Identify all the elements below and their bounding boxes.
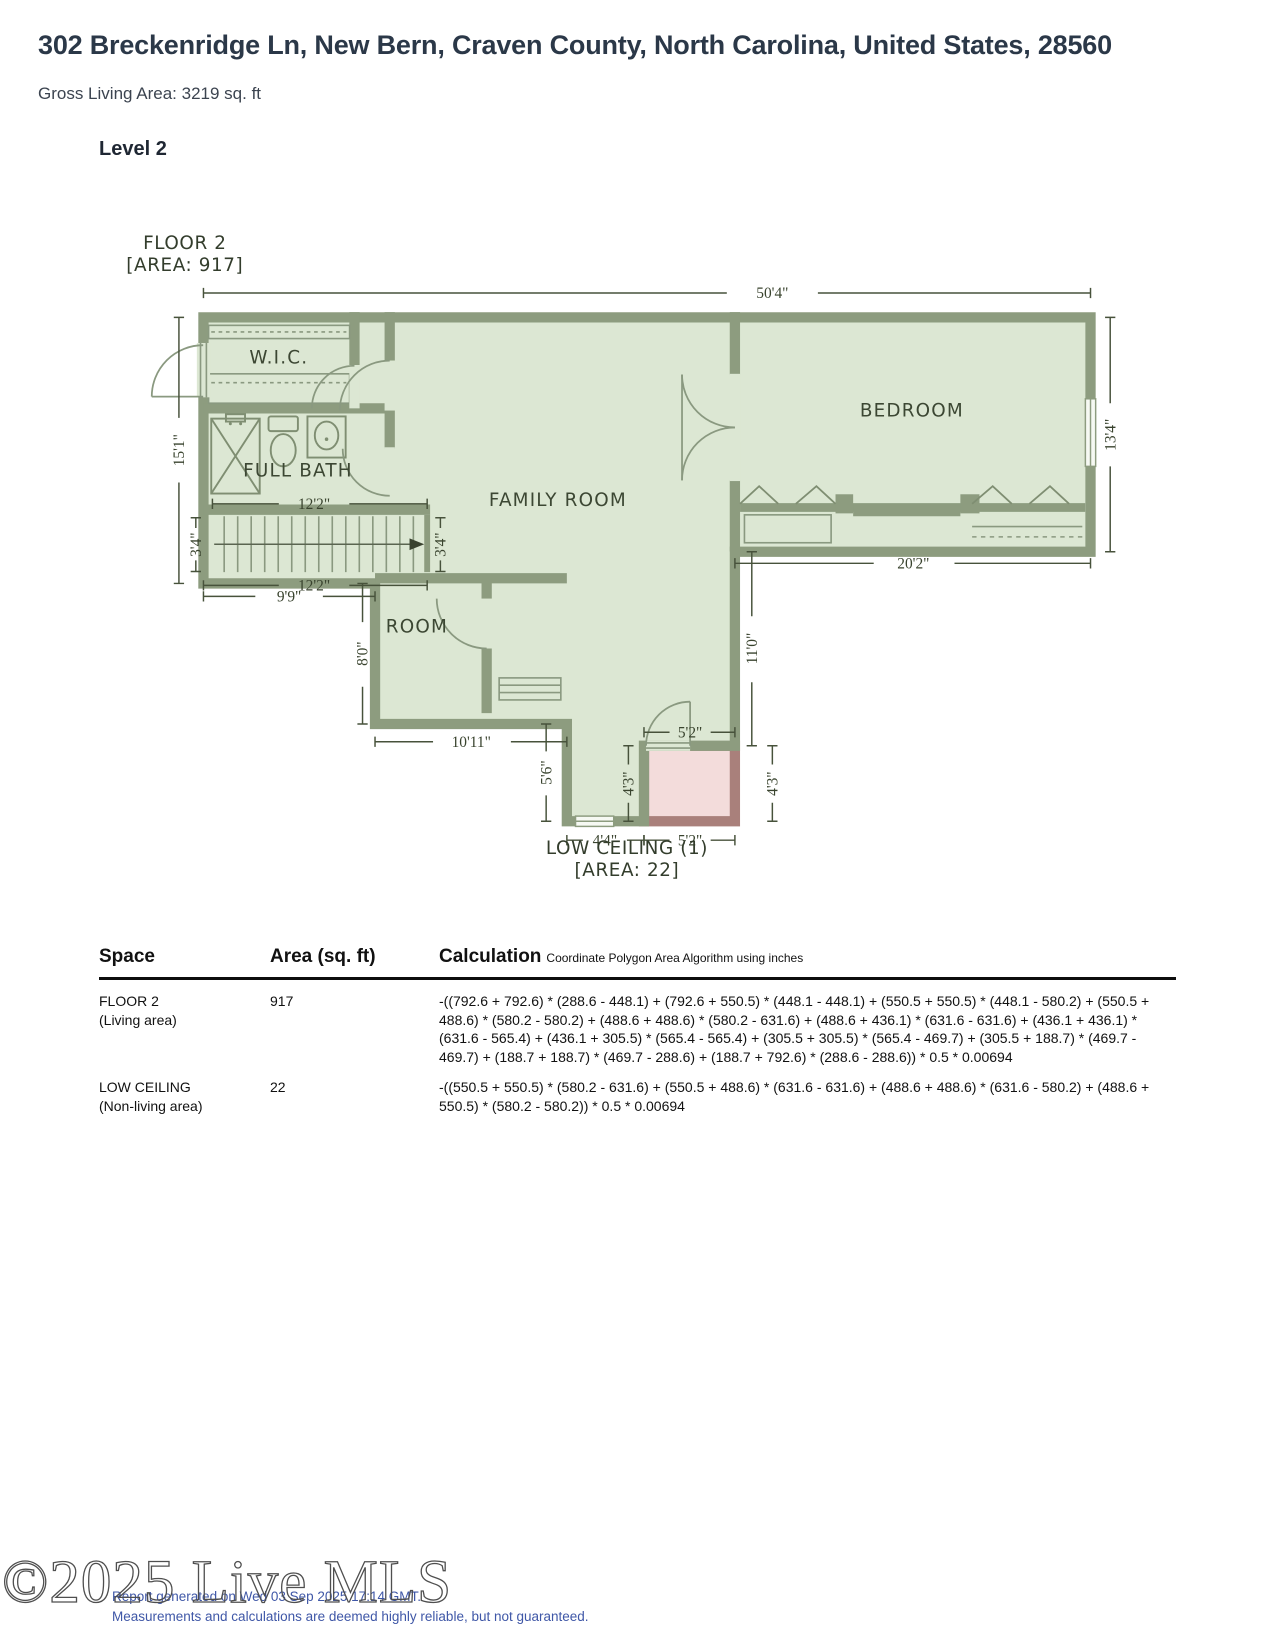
dim-bedroom-height: 13'4"	[1102, 419, 1119, 451]
table-header-row: Space Area (sq. ft) CalculationCoordinat…	[99, 946, 1176, 980]
row-area-value: 22	[270, 1078, 439, 1115]
dim-landing-width: 9'9"	[277, 589, 301, 606]
room-label-full-bath: FULL BATH	[243, 461, 353, 482]
col-header-calculation: CalculationCoordinate Polygon Area Algor…	[439, 946, 1176, 968]
dim-bedroom-width: 20'2"	[897, 555, 929, 572]
row-space-name: LOW CEILING	[99, 1078, 270, 1097]
table-row: LOW CEILING (Non-living area) 22 -((550.…	[99, 1066, 1176, 1115]
row-area-value: 917	[270, 992, 439, 1066]
gross-living-area: Gross Living Area: 3219 sq. ft	[38, 84, 261, 104]
bedroom-window	[1085, 399, 1095, 467]
low-ceiling-label: LOW CEILING (1)	[546, 838, 708, 859]
floor-label: FLOOR 2	[143, 233, 226, 254]
dim-room-height: 8'0"	[355, 641, 372, 665]
floor-area-label: [AREA: 917]	[126, 255, 243, 276]
calculation-note: Coordinate Polygon Area Algorithm using …	[546, 951, 803, 965]
col-header-space: Space	[99, 946, 270, 968]
room-label-bedroom: BEDROOM	[860, 400, 964, 421]
dim-left-height: 15'1"	[171, 434, 188, 466]
table-row: FLOOR 2 (Living area) 917 -((792.6 + 792…	[99, 980, 1176, 1066]
col-header-calculation-label: Calculation	[439, 946, 541, 967]
room-label-family-room: FAMILY ROOM	[489, 490, 627, 511]
watermark: ©2025 Live MLS	[2, 1548, 452, 1618]
row-calculation-value: -((792.6 + 792.6) * (288.6 - 448.1) + (7…	[439, 992, 1176, 1066]
row-space-note: (Living area)	[99, 1011, 270, 1030]
entry-door	[152, 343, 210, 397]
dim-stem-height: 11'0"	[744, 633, 761, 665]
dim-bath-width: 12'2"	[298, 496, 330, 513]
row-space-note: (Non-living area)	[99, 1097, 270, 1116]
room-label-room: ROOM	[386, 616, 448, 637]
dim-low-height-right: 4'3"	[764, 771, 781, 795]
row-space-name: FLOOR 2	[99, 992, 270, 1011]
dim-stairs-height-right: 3'4"	[433, 532, 450, 556]
calculation-table: Space Area (sq. ft) CalculationCoordinat…	[99, 946, 1176, 1115]
low-ceiling-area-label: [AREA: 22]	[575, 860, 680, 881]
page-title: 302 Breckenridge Ln, New Bern, Craven Co…	[38, 30, 1112, 61]
dim-low-top-width: 5'2"	[678, 724, 702, 741]
dim-corridor-height: 5'6"	[538, 760, 555, 784]
low-ceiling-area	[644, 746, 735, 822]
row-calculation-value: -((550.5 + 550.5) * (580.2 - 631.6) + (5…	[439, 1078, 1176, 1115]
report-generated-text: Report generated on Wed 03 Sep 2025 17:1…	[112, 1589, 421, 1604]
level-heading: Level 2	[99, 138, 167, 161]
dim-stairs-width: 12'2"	[298, 577, 330, 594]
dim-room-width: 10'11"	[452, 734, 491, 751]
corridor-window	[576, 816, 614, 826]
dim-total-width: 50'4"	[756, 285, 788, 302]
floor-plan: FLOOR 2 [AREA: 917]	[102, 224, 1146, 885]
disclaimer-text: Measurements and calculations are deemed…	[112, 1609, 589, 1624]
col-header-area: Area (sq. ft)	[270, 946, 439, 968]
dim-low-height-left: 4'3"	[621, 771, 638, 795]
dim-stairs-height-left: 3'4"	[188, 532, 205, 556]
room-label-wic: W.I.C.	[249, 348, 308, 369]
